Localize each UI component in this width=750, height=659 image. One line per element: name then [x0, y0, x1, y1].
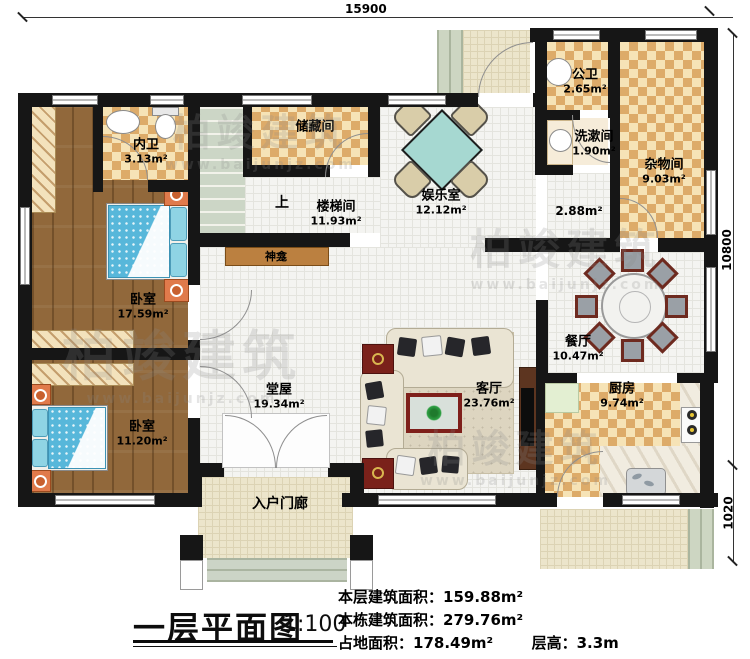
wall [18, 93, 32, 507]
wall [93, 180, 103, 192]
chair [621, 249, 644, 272]
shrine-label: 神龛 [265, 248, 287, 264]
wall [195, 233, 350, 247]
window [622, 495, 680, 505]
sofa-cushion [419, 456, 438, 475]
wardrobe [28, 105, 56, 213]
bathroom-sink [106, 110, 140, 134]
wall [93, 107, 103, 180]
room-label-washroom: 洗漱间1.90m² [572, 130, 615, 157]
room-label-kitchen: 厨房9.74m² [600, 382, 643, 409]
sofa-cushion [365, 429, 384, 448]
sofa-cushion [421, 335, 443, 357]
porch-pillar-base [180, 560, 203, 590]
title-underline [133, 640, 333, 643]
tv [521, 388, 534, 446]
window [52, 95, 98, 105]
plan-scale: 1:100 [283, 612, 346, 637]
dimension-right-upper-value: 10800 [720, 229, 734, 271]
stat-floor-area: 本层建筑面积：159.88m² [338, 586, 523, 607]
dimension-line-top [22, 17, 733, 18]
room-label-main-hall: 堂屋19.34m² [253, 383, 304, 410]
dimension-right-lower-value: 1020 [722, 496, 736, 529]
window [55, 495, 155, 505]
wall [535, 28, 547, 173]
room-label-bedroom-2: 卧室11.20m² [116, 420, 167, 447]
window [645, 30, 697, 40]
bed-pillow [32, 439, 48, 467]
room-label-stairwell: 楼梯间11.93m² [310, 200, 361, 227]
side-table [362, 458, 394, 489]
corridor-area-label: 2.88m² [555, 204, 602, 218]
plant [426, 405, 442, 421]
window [150, 95, 184, 105]
stairs [200, 107, 245, 233]
stat-building-area: 本栋建筑面积：279.76m² [338, 609, 523, 630]
stairs-up-label: 上 [275, 192, 289, 212]
window [553, 30, 600, 40]
stat-ground-area: 占地面积：178.49m² 层高：3.3m [338, 632, 619, 653]
bed-pillow [170, 207, 187, 241]
window [706, 267, 716, 352]
window [706, 170, 716, 235]
chair [665, 295, 688, 318]
kitchen-porch-steps [688, 509, 714, 569]
sofa-cushion [397, 337, 417, 357]
wall [536, 300, 548, 383]
sofa-cushion [441, 455, 459, 473]
washroom-sink [549, 129, 572, 152]
room-label-public-bath: 公卫2.65m² [563, 68, 606, 95]
nightstand [30, 384, 51, 405]
nightstand [30, 470, 51, 492]
kitchen-counter-top [545, 383, 579, 413]
room-label-living-room: 客厅23.76m² [463, 382, 514, 409]
room-label-utility: 杂物间9.03m² [642, 158, 685, 185]
title-underline-thin [133, 646, 337, 647]
bed-pillow [170, 243, 187, 277]
window [388, 95, 446, 105]
room-label-game-room: 娱乐室12.12m² [415, 189, 466, 216]
sofa-cushion [366, 405, 387, 426]
bed-sheet [109, 206, 169, 277]
wall [536, 383, 545, 497]
entry-porch-steps [207, 558, 347, 582]
wall [188, 418, 200, 473]
window [242, 95, 312, 105]
bed-mattress [108, 205, 170, 278]
wall [658, 238, 715, 252]
room-label-bedroom-1: 卧室17.59m² [117, 293, 168, 320]
wall [148, 180, 200, 192]
wall [535, 165, 573, 175]
room-label-storage: 储藏间 [295, 121, 334, 136]
closet [28, 363, 134, 386]
bed-pillow [32, 409, 48, 437]
bed-mattress [48, 407, 106, 469]
stove-burner [687, 425, 697, 435]
room-label-dining-room: 餐厅10.47m² [552, 335, 603, 362]
back-porch-steps [437, 30, 463, 93]
window [378, 495, 496, 505]
wall [18, 348, 190, 360]
entry-porch-tile [198, 477, 353, 558]
sofa-cushion [445, 337, 466, 358]
sofa-cushion [365, 381, 385, 401]
wall [608, 28, 620, 118]
wall [368, 93, 380, 177]
wall [188, 107, 200, 285]
dimension-tick [704, 6, 715, 17]
wall [545, 373, 577, 383]
dimension-line-right [733, 33, 734, 562]
wall [485, 238, 620, 252]
floor-plan-canvas: 内卫3.13m² 储藏间 楼梯间11.93m² 上 娱乐室12.12m² 公卫2… [0, 0, 750, 659]
wall [700, 377, 714, 508]
porch-pillar [350, 535, 373, 560]
entry-porch-label: 入户门廊 [252, 493, 308, 513]
room-label-inner-bath: 内卫3.13m² [124, 138, 167, 165]
wall [243, 165, 330, 177]
sofa-cushion [395, 455, 416, 476]
dimension-top-value: 15900 [345, 2, 387, 16]
sofa-cushion [471, 336, 491, 356]
chair [621, 339, 644, 362]
toilet [155, 114, 176, 139]
window [20, 207, 30, 285]
porch-pillar [180, 535, 203, 560]
side-table [362, 344, 394, 374]
bed-sheet [49, 408, 105, 468]
wall [677, 373, 704, 383]
chair [575, 295, 598, 318]
stove-burner [687, 410, 697, 420]
kitchen-porch-tile [540, 509, 688, 569]
